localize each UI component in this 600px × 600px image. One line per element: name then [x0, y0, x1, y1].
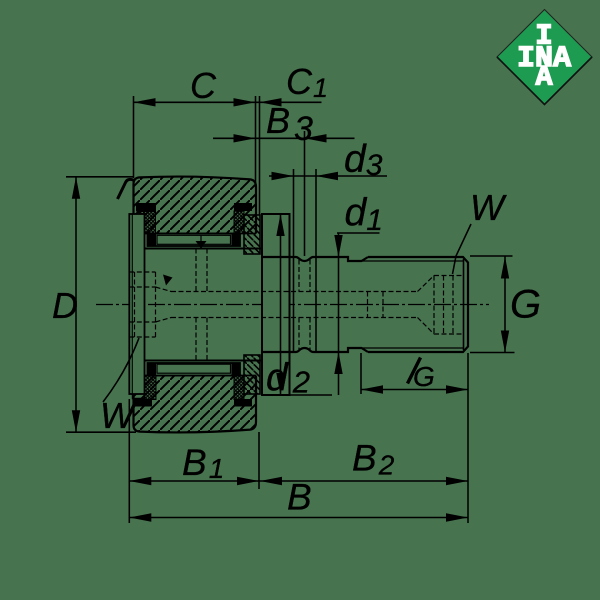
svg-text:W: W: [100, 395, 137, 436]
svg-text:B: B: [287, 477, 312, 518]
svg-text:W: W: [470, 187, 507, 228]
svg-text:A: A: [536, 63, 553, 94]
svg-text:G: G: [413, 361, 435, 392]
svg-text:D: D: [52, 285, 78, 326]
svg-text:C: C: [190, 65, 217, 106]
svg-text:G: G: [510, 283, 541, 327]
